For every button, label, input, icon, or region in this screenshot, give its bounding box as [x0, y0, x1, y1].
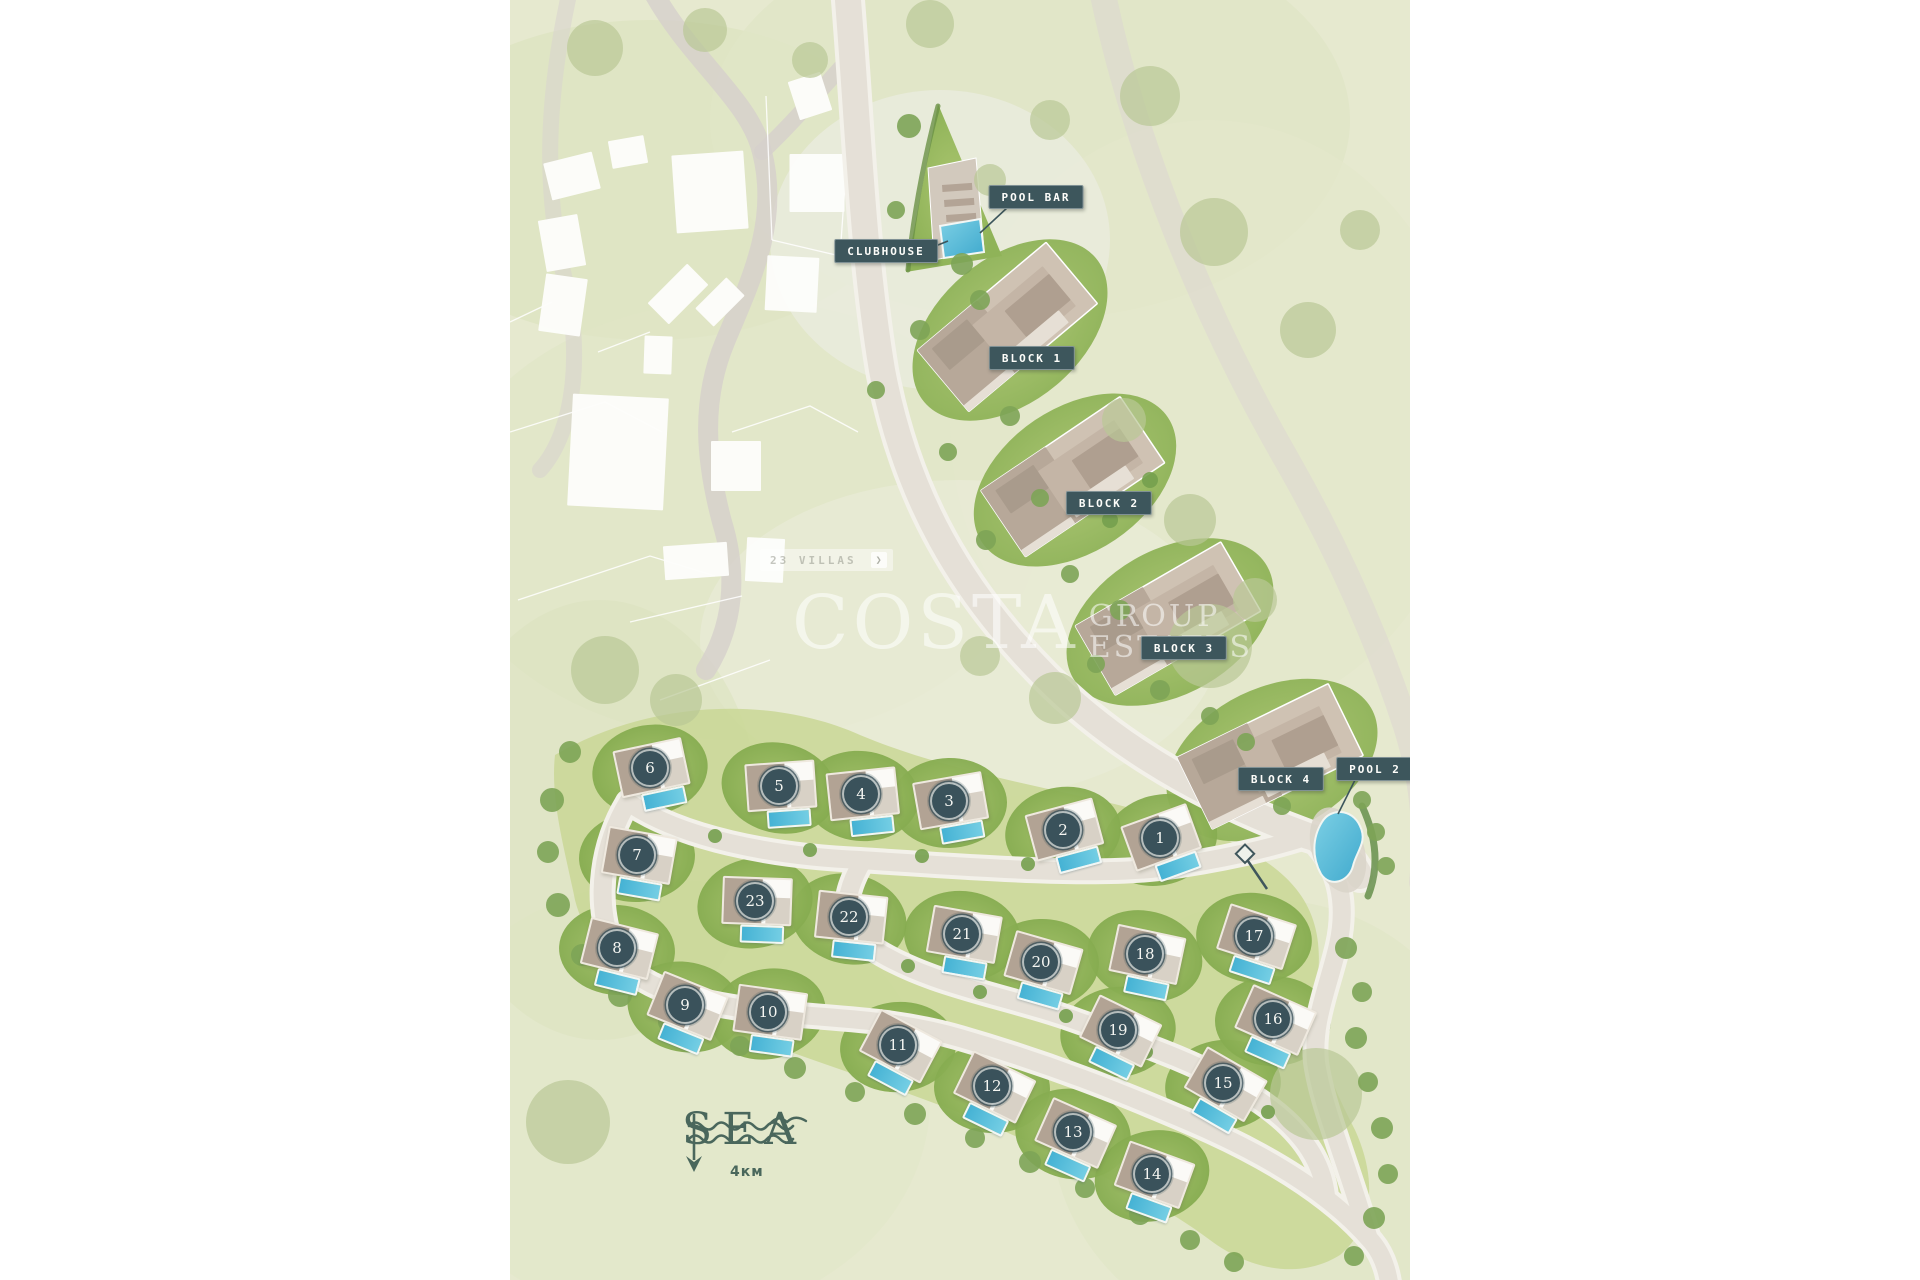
villa-number-badge[interactable]: 16 [1256, 1002, 1290, 1036]
villa-number: 15 [1213, 1076, 1232, 1091]
sea-indicator: SEA 4км [682, 1112, 852, 1180]
villa-number-badge[interactable]: 1 [1143, 821, 1177, 855]
villa-number-badge[interactable]: 11 [881, 1028, 915, 1062]
amenity-label-text: BLOCK 2 [1079, 497, 1139, 510]
villa-number: 10 [758, 1005, 777, 1020]
label-block-4[interactable]: BLOCK 4 [1238, 767, 1324, 791]
villa-number-badge[interactable]: 10 [751, 995, 785, 1029]
villa-number-badge[interactable]: 2 [1046, 813, 1080, 847]
villa-number-badge[interactable]: 9 [668, 988, 702, 1022]
villa-number: 14 [1142, 1167, 1161, 1182]
villa-number-badge[interactable]: 15 [1206, 1066, 1240, 1100]
villa-number: 18 [1135, 947, 1154, 962]
masterplan-map: COSTA GROUP ESTATES 1 2 [510, 0, 1410, 1280]
villa-number-badge[interactable]: 13 [1056, 1115, 1090, 1149]
villas-direction-sign[interactable]: 23 VILLAS ❯ [760, 549, 893, 571]
villa-number-badge[interactable]: 14 [1135, 1157, 1169, 1191]
site-plan-page: COSTA GROUP ESTATES 1 2 [0, 0, 1920, 1280]
amenity-label-text: CLUBHOUSE [847, 245, 925, 258]
villa-pool [849, 815, 895, 838]
villa-number-badge[interactable]: 17 [1237, 919, 1271, 953]
villa-number: 20 [1031, 955, 1050, 970]
villa-number-badge[interactable]: 21 [945, 917, 979, 951]
villa-number: 9 [680, 998, 690, 1013]
villa-number: 13 [1063, 1125, 1082, 1140]
amenity-label-text: BLOCK 3 [1154, 642, 1214, 655]
villa-number: 8 [612, 941, 622, 956]
villa-pool [767, 808, 812, 829]
villa-number-badge[interactable]: 3 [932, 784, 966, 818]
villa-pool [831, 939, 877, 962]
label-clubhouse[interactable]: CLUBHOUSE [834, 239, 938, 263]
label-block-2[interactable]: BLOCK 2 [1066, 491, 1152, 515]
label-block-1[interactable]: BLOCK 1 [989, 346, 1075, 370]
villa-number: 4 [856, 787, 866, 802]
villa-pool [740, 924, 785, 944]
villa-number: 12 [982, 1079, 1001, 1094]
villas-direction-sign-text: 23 VILLAS [770, 554, 857, 567]
villa-number-badge[interactable]: 23 [738, 884, 772, 918]
amenity-label-text: BLOCK 4 [1251, 773, 1311, 786]
label-pool-bar[interactable]: POOL BAR [989, 185, 1084, 209]
label-pool-2[interactable]: POOL 2 [1336, 757, 1410, 781]
villa-number: 22 [839, 910, 858, 925]
villa-number-badge[interactable]: 8 [600, 931, 634, 965]
villa-number-badge[interactable]: 12 [975, 1069, 1009, 1103]
villa-number-badge[interactable]: 7 [620, 838, 654, 872]
villa-number: 7 [632, 848, 642, 863]
villa-number-badge[interactable]: 5 [762, 769, 796, 803]
villa-number: 3 [944, 794, 954, 809]
villa-number-badge[interactable]: 20 [1024, 945, 1058, 979]
amenity-label-text: BLOCK 1 [1002, 352, 1062, 365]
villa-number: 6 [645, 761, 655, 776]
label-block-3[interactable]: BLOCK 3 [1141, 636, 1227, 660]
villa-number: 2 [1058, 823, 1068, 838]
villas-layer: 1 2 3 [510, 0, 1410, 1280]
villa-number: 16 [1263, 1012, 1282, 1027]
villa-number: 21 [952, 927, 971, 942]
villa-number: 23 [745, 894, 764, 909]
amenity-label-text: POOL 2 [1349, 763, 1401, 776]
arrow-down-icon [682, 1112, 706, 1174]
villa-number-badge[interactable]: 18 [1128, 937, 1162, 971]
villa-number: 19 [1108, 1023, 1127, 1038]
villa-number-badge[interactable]: 6 [633, 751, 667, 785]
villa-number: 11 [888, 1038, 907, 1053]
chevron-right-icon: ❯ [871, 552, 887, 568]
villa-number: 1 [1155, 831, 1165, 846]
villa-number: 17 [1244, 929, 1263, 944]
villa-number-badge[interactable]: 19 [1101, 1013, 1135, 1047]
sea-distance: 4км [730, 1164, 764, 1180]
amenity-label-text: POOL BAR [1002, 191, 1071, 204]
villa-number-badge[interactable]: 4 [844, 777, 878, 811]
villa-number: 5 [774, 779, 784, 794]
villa-number-badge[interactable]: 22 [832, 900, 866, 934]
